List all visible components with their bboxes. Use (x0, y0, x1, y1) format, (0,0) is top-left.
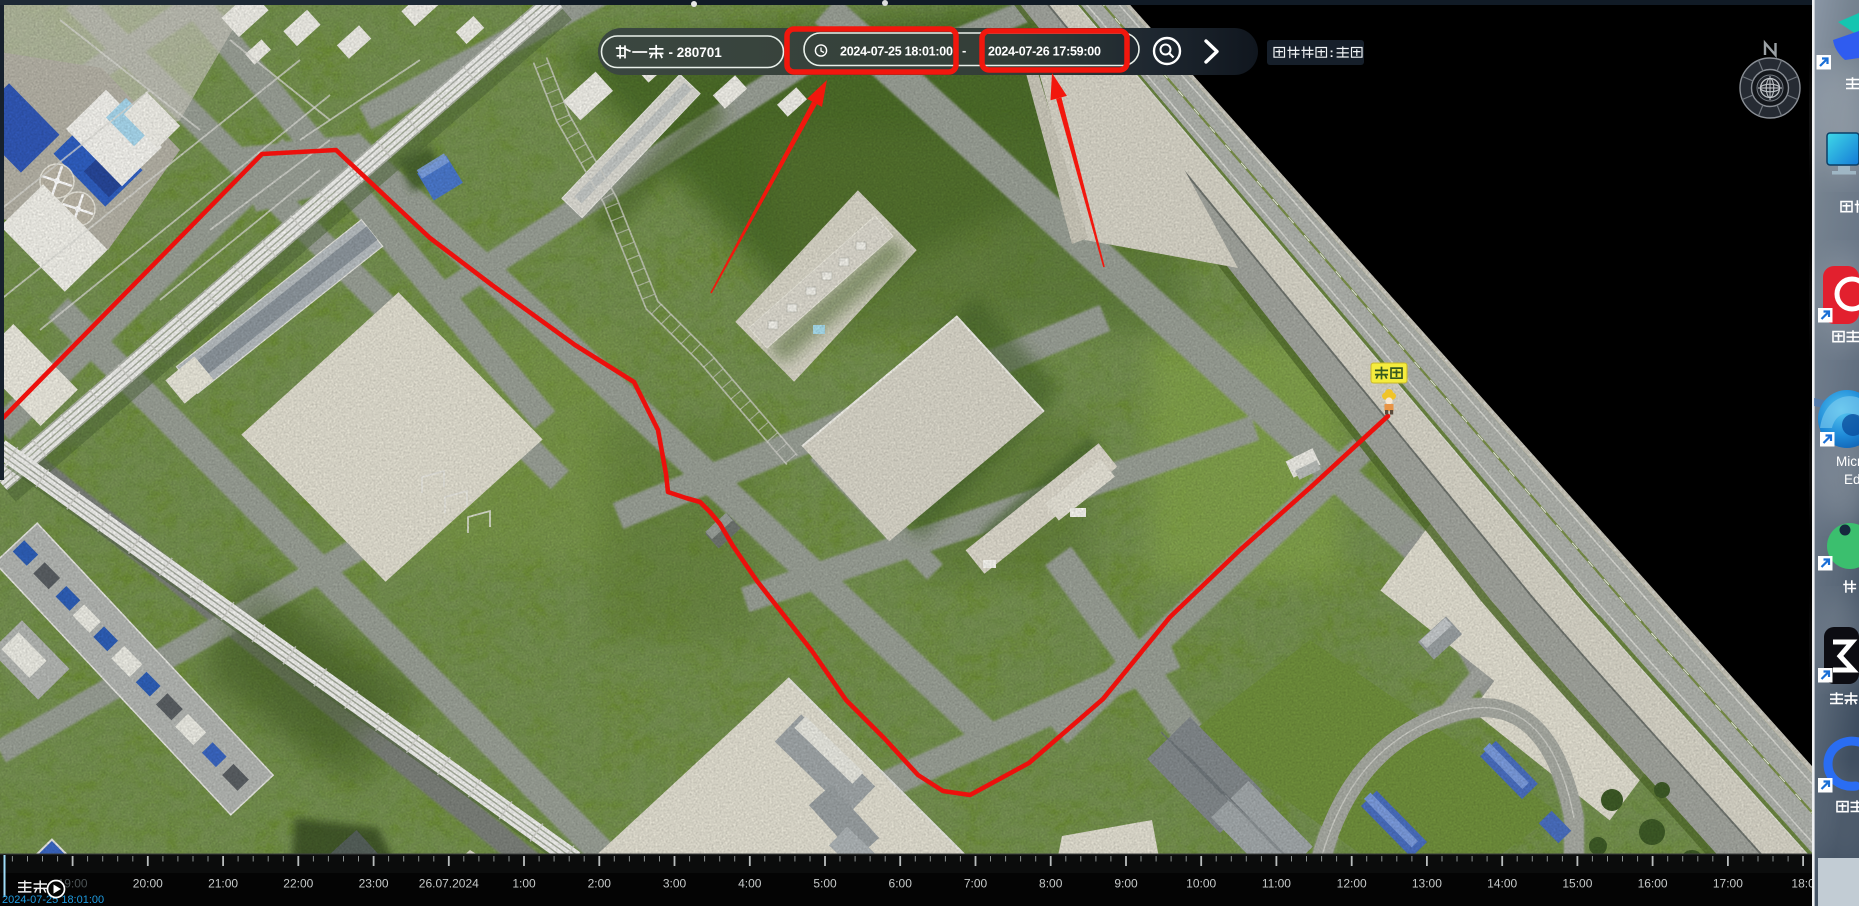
svg-text:15:00: 15:00 (1562, 877, 1592, 891)
svg-text:16:00: 16:00 (1638, 877, 1668, 891)
svg-text:20:00: 20:00 (133, 877, 163, 891)
svg-text:7:00: 7:00 (964, 877, 988, 891)
svg-text:2:00: 2:00 (588, 877, 612, 891)
svg-text:6:00: 6:00 (889, 877, 913, 891)
svg-text:26.07.2024: 26.07.2024 (419, 877, 479, 891)
svg-text:2024-07-25 18:01:00: 2024-07-25 18:01:00 (840, 45, 953, 59)
svg-text:14:00: 14:00 (1487, 877, 1517, 891)
svg-text:10:00: 10:00 (1186, 877, 1216, 891)
svg-text:2024-07-26 17:59:00: 2024-07-26 17:59:00 (988, 45, 1101, 59)
svg-text:4:00: 4:00 (738, 877, 762, 891)
svg-text:5:00: 5:00 (813, 877, 837, 891)
svg-text:1:00: 1:00 (512, 877, 536, 891)
svg-text:8:00: 8:00 (1039, 877, 1063, 891)
svg-text::: : (1330, 46, 1334, 60)
svg-text:Micr: Micr (1836, 454, 1859, 469)
svg-text:22:00: 22:00 (283, 877, 313, 891)
svg-text:11:00: 11:00 (1262, 877, 1291, 891)
svg-text:13:00: 13:00 (1412, 877, 1442, 891)
svg-text:21:00: 21:00 (208, 877, 238, 891)
svg-text:23:00: 23:00 (359, 877, 389, 891)
svg-text:3:00: 3:00 (663, 877, 687, 891)
svg-text:Ed: Ed (1844, 472, 1859, 487)
svg-text:17:00: 17:00 (1713, 877, 1743, 891)
svg-text:- 280701: - 280701 (669, 45, 723, 60)
svg-text:18:0: 18:0 (1791, 877, 1815, 891)
svg-text:-: - (962, 43, 966, 58)
svg-text:12:00: 12:00 (1337, 877, 1367, 891)
svg-text:9:00: 9:00 (1114, 877, 1138, 891)
